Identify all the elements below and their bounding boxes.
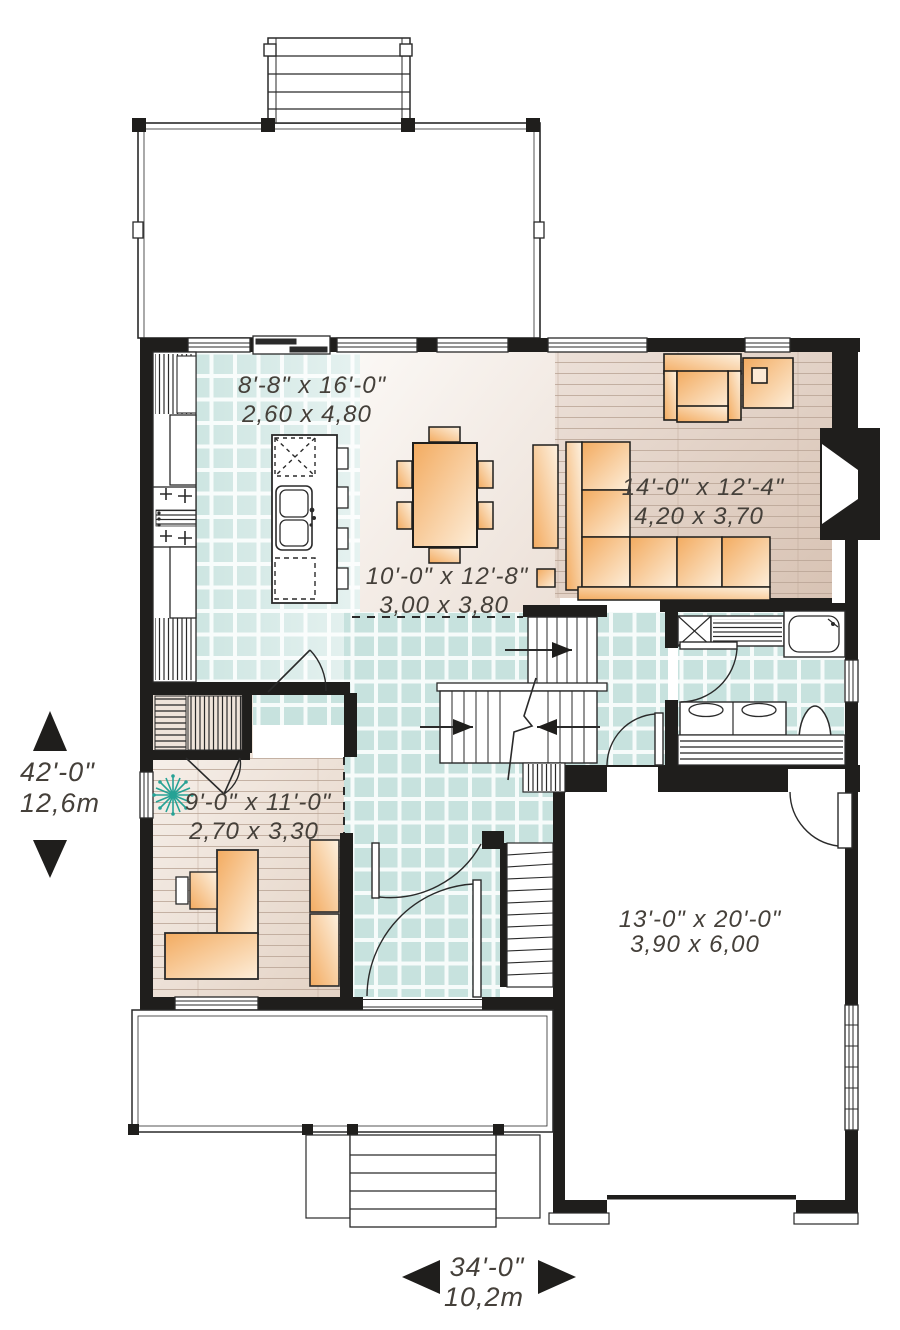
wall-bath-left-stub [665,612,678,648]
floor-plan: 42'-0" 12,6m 34'-0" 10,2m 8'-8" x 16'-0"… [0,0,900,1330]
sofa-armrest [566,442,582,590]
closet-hanging-rod [188,696,242,750]
dimension-depth: 42'-0" 12,6m [20,711,100,878]
sofa-back [578,587,770,600]
dining-window-2 [437,338,508,352]
dining-table [413,443,477,547]
office-dim-imperial: 9'-0" x 11'-0" [185,789,332,816]
kitchen-dim-imperial: 8'-8" x 16'-0" [238,372,387,399]
office-closet [155,696,242,750]
living-dim-imperial: 14'-0" x 12'-4" [622,474,785,501]
garage-floor [565,792,845,1200]
deck [132,38,544,338]
base-cabinet [170,547,196,618]
office-side-window [140,772,153,818]
wall-bath-left [665,700,678,765]
office-front-window [175,997,258,1010]
deck-stairs [264,38,412,123]
vanity-double-sink [680,702,786,735]
refrigerator [170,415,196,485]
arrow-left-icon [402,1260,440,1294]
desk-chair [190,872,217,909]
console-table [533,445,558,548]
pantry-cabinet [177,356,196,413]
deck-railing [138,123,540,338]
wall-basement-stair [500,843,507,987]
garage-window [845,1005,858,1130]
bathtub [784,611,845,657]
kitchen-counter [153,352,196,682]
dining-dim-metric: 3,00 x 3,80 [379,592,509,619]
stair-post [264,44,276,56]
living-window-1 [548,338,647,352]
porch-steps [306,1135,540,1227]
wall-closet-bottom [153,750,250,760]
kitchen-island [272,435,337,603]
width-metric: 10,2m [444,1282,524,1312]
arrow-up-icon [33,711,67,751]
dimension-width: 34'-0" 10,2m [402,1252,576,1312]
faucet [310,508,315,513]
kitchen-window [188,338,250,352]
deck-mid-post [133,222,143,238]
width-imperial: 34'-0" [450,1252,525,1282]
arrow-right-icon [538,1260,576,1294]
floor-plan-drawing: 42'-0" 12,6m 34'-0" 10,2m 8'-8" x 16'-0"… [0,0,900,1330]
front-porch [128,1010,553,1227]
small-table [537,569,555,587]
living-dim-metric: 4,20 x 3,70 [634,503,764,530]
wall-garage-left [553,792,565,1213]
stair-post [400,44,412,56]
basement-stair-run [507,843,553,987]
wall-living-right [832,352,858,428]
patio-door [253,336,330,354]
basement-stair-top [523,763,565,792]
depth-metric: 12,6m [20,788,100,818]
closet-shelves [155,696,186,750]
deck-mid-post [534,222,544,238]
range-stove [153,487,196,547]
bath-bench [678,735,845,765]
kitchen-dim-metric: 2,60 x 4,80 [241,401,372,428]
dining-dim-imperial: 10'-0" x 12'-8" [366,563,529,590]
side-table-lamp [743,358,793,408]
arrow-down-icon [33,840,67,878]
wall-stair-top [523,605,607,617]
garage-sill-left [549,1213,609,1224]
dining-window-1 [337,338,417,352]
garage-dim-metric: 3,90 x 6,00 [630,931,760,958]
wall-closet-divider [242,693,252,753]
lamp [752,368,767,383]
wall-garage-bottom-left [553,1200,607,1213]
depth-imperial: 42'-0" [20,757,95,787]
bathroom-window [845,660,858,702]
wall-alcove-right [344,693,357,757]
garage-sill-right [794,1213,858,1224]
double-sink [276,486,316,550]
living-window-2 [745,338,790,352]
wall-garage-bottom-right [796,1200,858,1213]
wall-office-vestibule [340,833,353,997]
garage-dim-imperial: 13'-0" x 20'-0" [619,906,782,933]
stair-railing [437,683,607,691]
wall-left [140,338,153,1010]
armchair [664,354,741,422]
office-dim-metric: 2,70 x 3,30 [188,818,319,845]
